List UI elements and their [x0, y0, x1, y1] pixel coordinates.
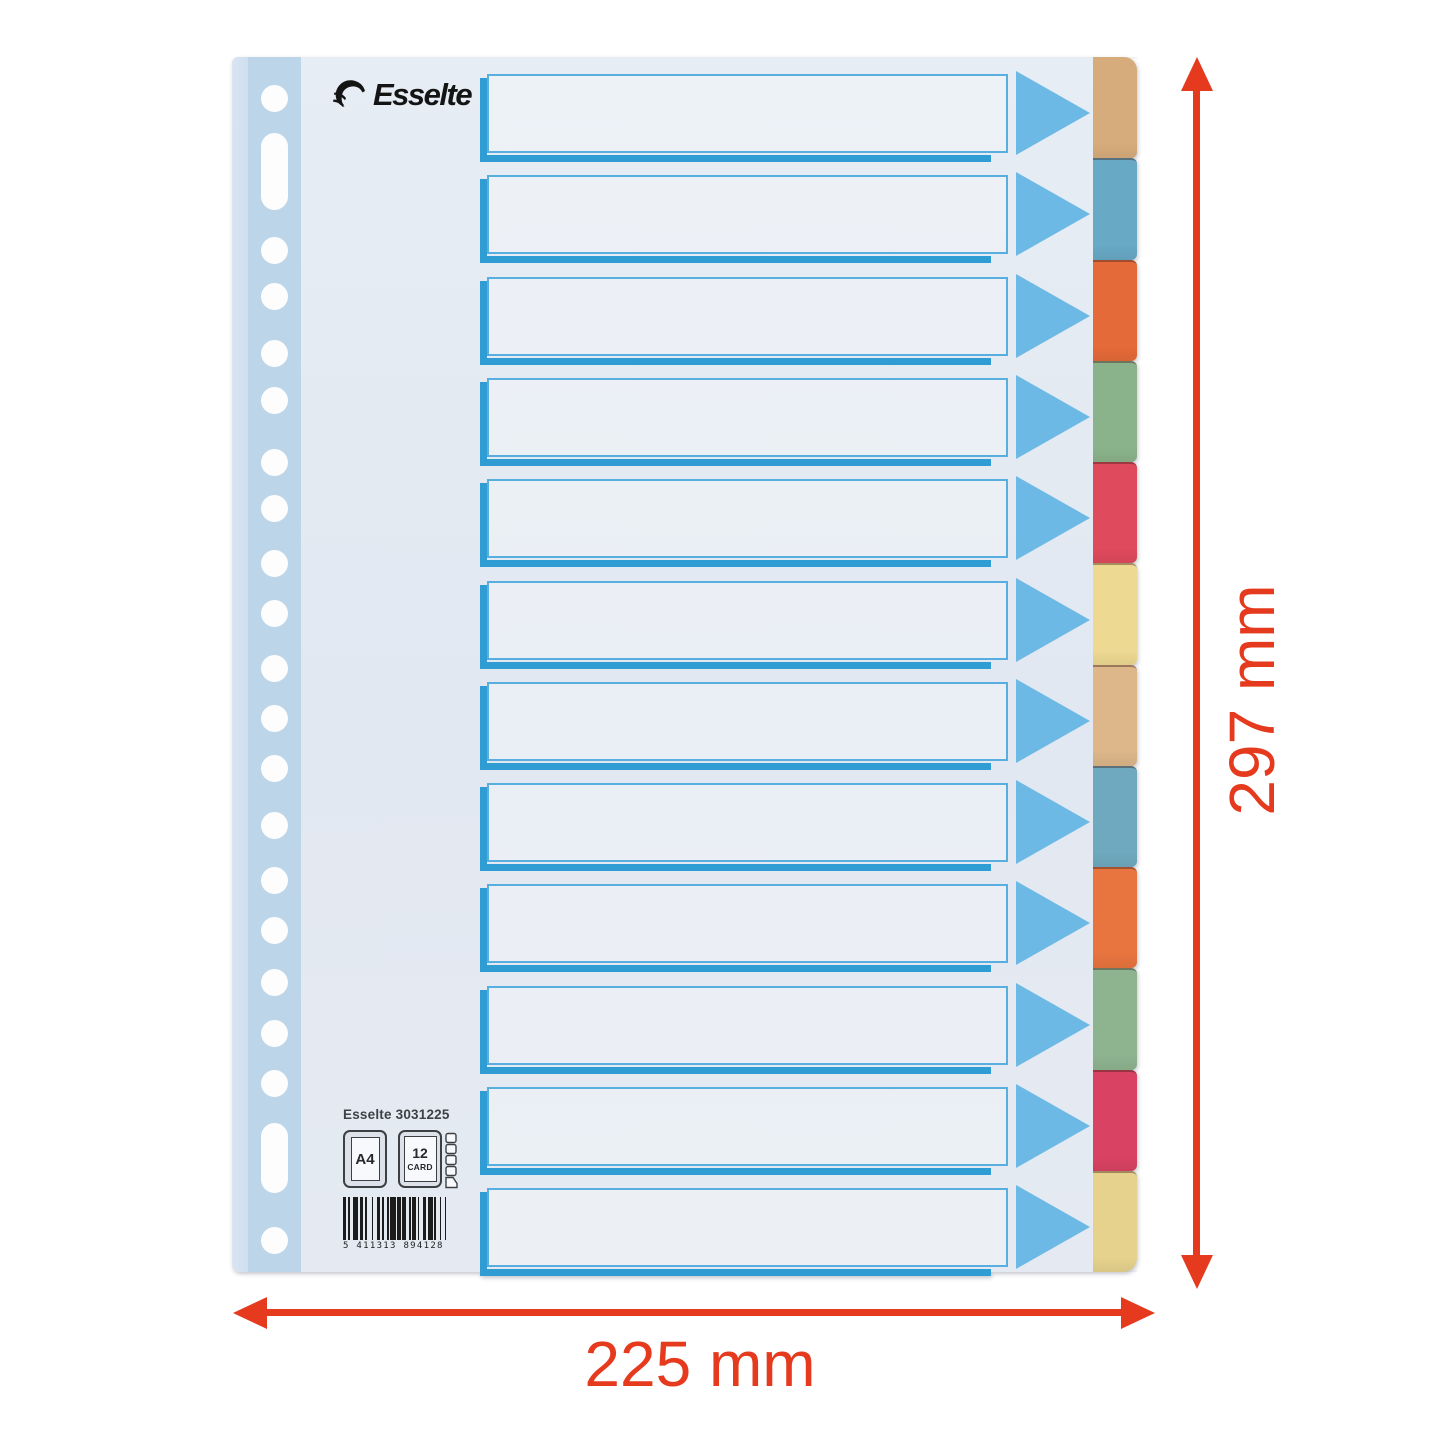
writable-label-box	[487, 783, 1008, 862]
tab-arrow-icon	[1016, 881, 1090, 965]
arrow-left-icon	[233, 1297, 267, 1329]
format-badge: A4	[343, 1130, 387, 1188]
card-page-icon: 12 CARD	[404, 1136, 437, 1182]
tab-orange	[1093, 260, 1137, 361]
arrow-up-icon	[1181, 57, 1213, 91]
tab-count-label: 12	[412, 1146, 428, 1160]
tab-arrow-icon	[1016, 476, 1090, 560]
tab-arrow-icon	[1016, 274, 1090, 358]
tab-arrow-icon	[1016, 780, 1090, 864]
writable-label-box	[487, 479, 1008, 558]
height-dimension-label: 297 mm	[1212, 540, 1292, 860]
tab-tan	[1093, 665, 1137, 766]
product-code: Esselte 3031225	[343, 1107, 450, 1122]
writable-label-box	[487, 1087, 1008, 1166]
tab-yellow	[1093, 1171, 1137, 1272]
index-row	[232, 277, 1093, 356]
tab-arrow-icon	[1016, 1084, 1090, 1168]
arrow-right-icon	[1121, 1297, 1155, 1329]
imprint-block: Esselte 3031225 A4 12 CARD	[343, 1107, 450, 1122]
writable-label-box	[487, 682, 1008, 761]
barcode: 5 411313 894128	[343, 1197, 447, 1251]
writable-label-box	[487, 175, 1008, 254]
tab-arrow-icon	[1016, 1185, 1090, 1269]
writable-label-box	[487, 74, 1008, 153]
writable-label-box	[487, 1188, 1008, 1267]
tab-red	[1093, 1070, 1137, 1171]
index-row	[232, 986, 1093, 1065]
index-row	[232, 378, 1093, 457]
width-dimension-label: 225 mm	[500, 1324, 900, 1404]
width-dimension-line	[266, 1309, 1122, 1316]
index-row	[232, 581, 1093, 660]
format-badge-label: A4	[355, 1151, 374, 1168]
index-row	[232, 682, 1093, 761]
tab-blue	[1093, 158, 1137, 259]
divider-front-page: Esselte Esselte 3031225 A4 12 CARD	[232, 57, 1093, 1272]
barcode-bar	[445, 1197, 447, 1240]
writable-label-box	[487, 277, 1008, 356]
tab-blue	[1093, 766, 1137, 867]
writable-label-box	[487, 581, 1008, 660]
tab-arrow-icon	[1016, 172, 1090, 256]
tab-orange	[1093, 867, 1137, 968]
tab-green	[1093, 968, 1137, 1069]
tab-column	[1093, 57, 1137, 1272]
tab-red	[1093, 462, 1137, 563]
arrow-down-icon	[1181, 1255, 1213, 1289]
product-image: Esselte Esselte 3031225 A4 12 CARD	[0, 0, 1445, 1445]
index-row	[232, 884, 1093, 963]
tab-count-badge: 12 CARD	[398, 1130, 442, 1188]
index-row	[232, 479, 1093, 558]
tab-yellow	[1093, 563, 1137, 664]
tab-arrow-icon	[1016, 71, 1090, 155]
a4-page-icon: A4	[351, 1137, 380, 1181]
tab-arrow-icon	[1016, 983, 1090, 1067]
index-row	[232, 783, 1093, 862]
tab-arrow-icon	[1016, 679, 1090, 763]
barcode-digits: 5 411313 894128	[343, 1241, 447, 1251]
writable-label-box	[487, 378, 1008, 457]
tab-green	[1093, 361, 1137, 462]
index-row	[232, 175, 1093, 254]
index-row	[232, 74, 1093, 153]
divider-sheet: Esselte Esselte 3031225 A4 12 CARD	[232, 57, 1137, 1272]
material-label: CARD	[407, 1163, 432, 1172]
tab-arrow-icon	[1016, 578, 1090, 662]
height-dimension-line	[1193, 88, 1200, 1258]
badge-row: A4 12 CARD	[343, 1130, 459, 1188]
writable-label-box	[487, 884, 1008, 963]
tab-stack-icon	[445, 1132, 459, 1190]
writable-label-box	[487, 986, 1008, 1065]
barcode-bars	[343, 1197, 447, 1240]
tab-arrow-icon	[1016, 375, 1090, 459]
tab-tan	[1093, 57, 1137, 158]
